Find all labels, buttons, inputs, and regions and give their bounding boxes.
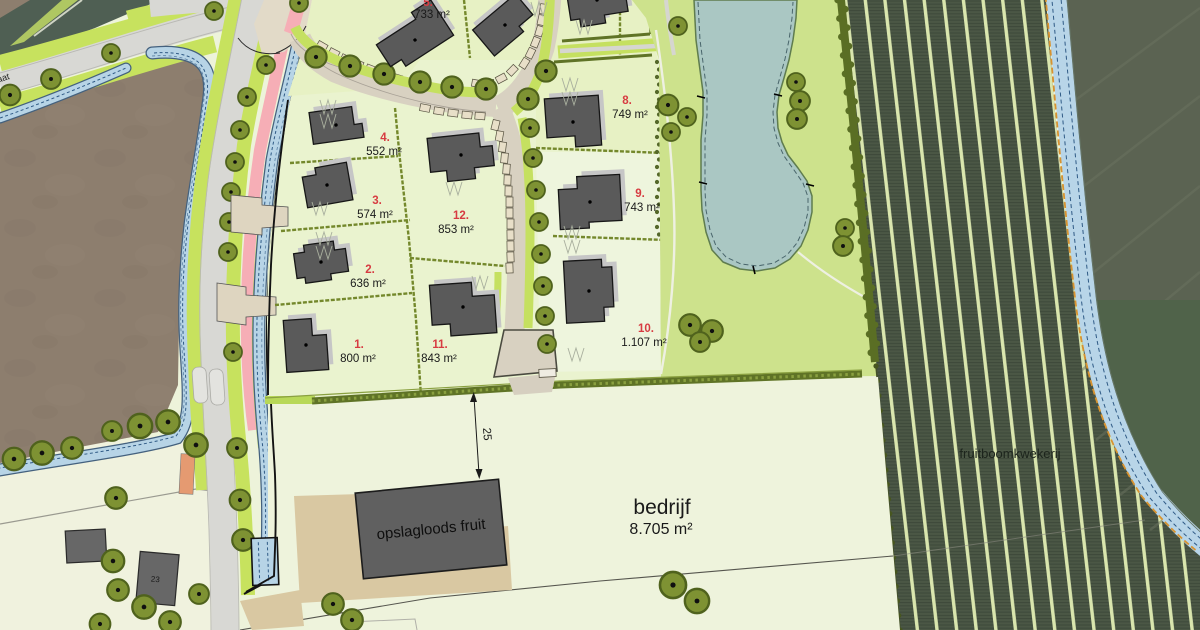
- svg-text:800 m²: 800 m²: [340, 353, 376, 365]
- svg-text:23: 23: [150, 574, 160, 584]
- svg-text:733 m²: 733 m²: [414, 9, 450, 21]
- svg-text:749 m²: 749 m²: [612, 109, 648, 121]
- svg-text:8.: 8.: [622, 95, 632, 107]
- svg-text:12.: 12.: [453, 210, 469, 222]
- svg-text:5.: 5.: [423, 0, 433, 9]
- svg-text:1.107 m²: 1.107 m²: [621, 337, 667, 349]
- svg-text:2.: 2.: [365, 264, 375, 276]
- svg-text:fruitboomkwekerij: fruitboomkwekerij: [959, 446, 1060, 461]
- svg-text:9.: 9.: [635, 188, 645, 200]
- svg-text:bedrijf: bedrijf: [633, 496, 690, 519]
- svg-text:11.: 11.: [432, 339, 447, 351]
- svg-text:4.: 4.: [380, 132, 390, 144]
- svg-text:3.: 3.: [372, 195, 382, 207]
- svg-text:743 m²: 743 m²: [624, 202, 660, 214]
- svg-text:1.: 1.: [354, 339, 364, 351]
- svg-text:8.705 m²: 8.705 m²: [629, 521, 693, 538]
- svg-text:636 m²: 636 m²: [350, 278, 386, 290]
- svg-text:843 m²: 843 m²: [421, 353, 457, 365]
- svg-text:574 m²: 574 m²: [357, 209, 393, 221]
- svg-text:552 m²: 552 m²: [366, 146, 402, 158]
- svg-text:10.: 10.: [638, 323, 654, 335]
- svg-text:25: 25: [480, 427, 493, 441]
- svg-text:853 m²: 853 m²: [438, 224, 474, 236]
